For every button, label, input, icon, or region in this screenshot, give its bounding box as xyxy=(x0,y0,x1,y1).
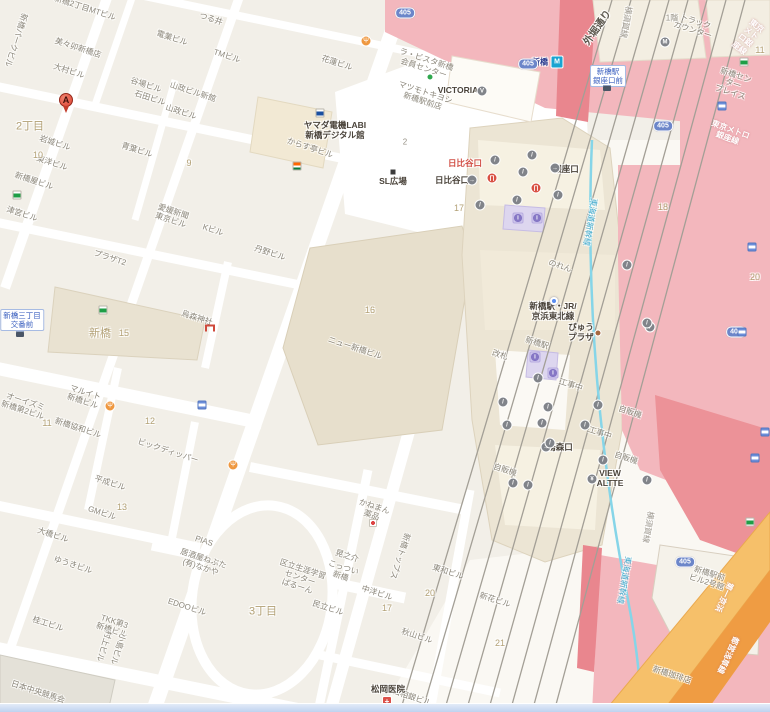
information-icon[interactable]: i xyxy=(548,368,559,379)
ticket-gate-icon: ∏ xyxy=(487,173,498,184)
station-facility-icon: / xyxy=(642,475,653,486)
station-facility-icon: M xyxy=(660,37,671,48)
station-facility-icon: / xyxy=(490,155,501,166)
information-icon[interactable]: i xyxy=(532,213,543,224)
station-facility-icon: → xyxy=(467,175,478,186)
station-facility-icon: / xyxy=(537,418,548,429)
restaurant-icon[interactable]: Ψ xyxy=(361,36,372,47)
subway-entrance-icon[interactable] xyxy=(748,243,757,252)
station-facility-icon: / xyxy=(533,373,544,384)
station-facility-icon: / xyxy=(512,195,523,206)
station-facility-icon: / xyxy=(622,260,633,271)
station-facility-icon: / xyxy=(553,190,564,201)
station-facility-icon: V xyxy=(477,86,488,97)
convenience-store-icon[interactable] xyxy=(740,58,749,67)
restaurant-icon[interactable]: Ψ xyxy=(105,401,116,412)
bus-stop-icon[interactable] xyxy=(603,85,611,91)
horizontal-scrollbar[interactable] xyxy=(0,703,770,712)
station-facility-icon: / xyxy=(508,478,519,489)
travel-center-dot-icon[interactable] xyxy=(595,330,602,337)
information-icon[interactable]: i xyxy=(513,213,524,224)
station-facility-icon: / xyxy=(543,402,554,413)
convenience-store-icon[interactable] xyxy=(99,306,108,315)
electronics-store-icon[interactable] xyxy=(316,109,325,118)
station-facility-icon: / xyxy=(642,318,653,329)
restaurant-icon[interactable]: Ψ xyxy=(228,460,239,471)
convenience-store-icon[interactable] xyxy=(13,191,22,200)
information-icon[interactable]: i xyxy=(530,352,541,363)
train-station-dot-icon[interactable] xyxy=(550,297,558,305)
station-facility-icon: / xyxy=(502,420,513,431)
ticket-gate-icon: ∏ xyxy=(531,183,542,194)
sl-monument-icon xyxy=(391,170,396,175)
clinic-icon[interactable] xyxy=(369,519,377,527)
convenience-store-icon[interactable] xyxy=(746,518,755,527)
station-facility-icon: / xyxy=(498,397,509,408)
seven-eleven-icon[interactable] xyxy=(293,162,302,171)
station-facility-icon: / xyxy=(593,400,604,411)
station-facility-icon: / xyxy=(523,480,534,491)
map-icons-layer: AΨΨΨ+∏∏iiii→→→¥MV///////////////////// xyxy=(0,0,770,712)
station-facility-icon: / xyxy=(475,200,486,211)
station-facility-icon: / xyxy=(598,455,609,466)
shrine-torii-icon[interactable] xyxy=(205,325,215,332)
station-facility-icon: / xyxy=(527,150,538,161)
subway-entrance-icon[interactable] xyxy=(738,328,747,337)
store-dot-icon[interactable] xyxy=(427,74,434,81)
station-facility-icon: → xyxy=(550,163,561,174)
station-facility-icon: ¥ xyxy=(587,474,598,485)
subway-entrance-icon[interactable] xyxy=(761,428,770,437)
subway-entrance-icon[interactable] xyxy=(751,454,760,463)
map-viewport[interactable]: 新橋2丁目MTビル美々卯新橋店大村ビル新橋パークビル電業ビル谷場ビル石田ビル山政… xyxy=(0,0,770,712)
station-facility-icon: / xyxy=(545,438,556,449)
station-facility-icon: / xyxy=(518,167,529,178)
station-facility-icon: / xyxy=(580,420,591,431)
subway-entrance-icon[interactable] xyxy=(718,102,727,111)
bus-stop-icon[interactable] xyxy=(16,331,24,337)
marker-a-icon[interactable]: A xyxy=(59,93,73,107)
subway-entrance-icon[interactable] xyxy=(198,401,207,410)
